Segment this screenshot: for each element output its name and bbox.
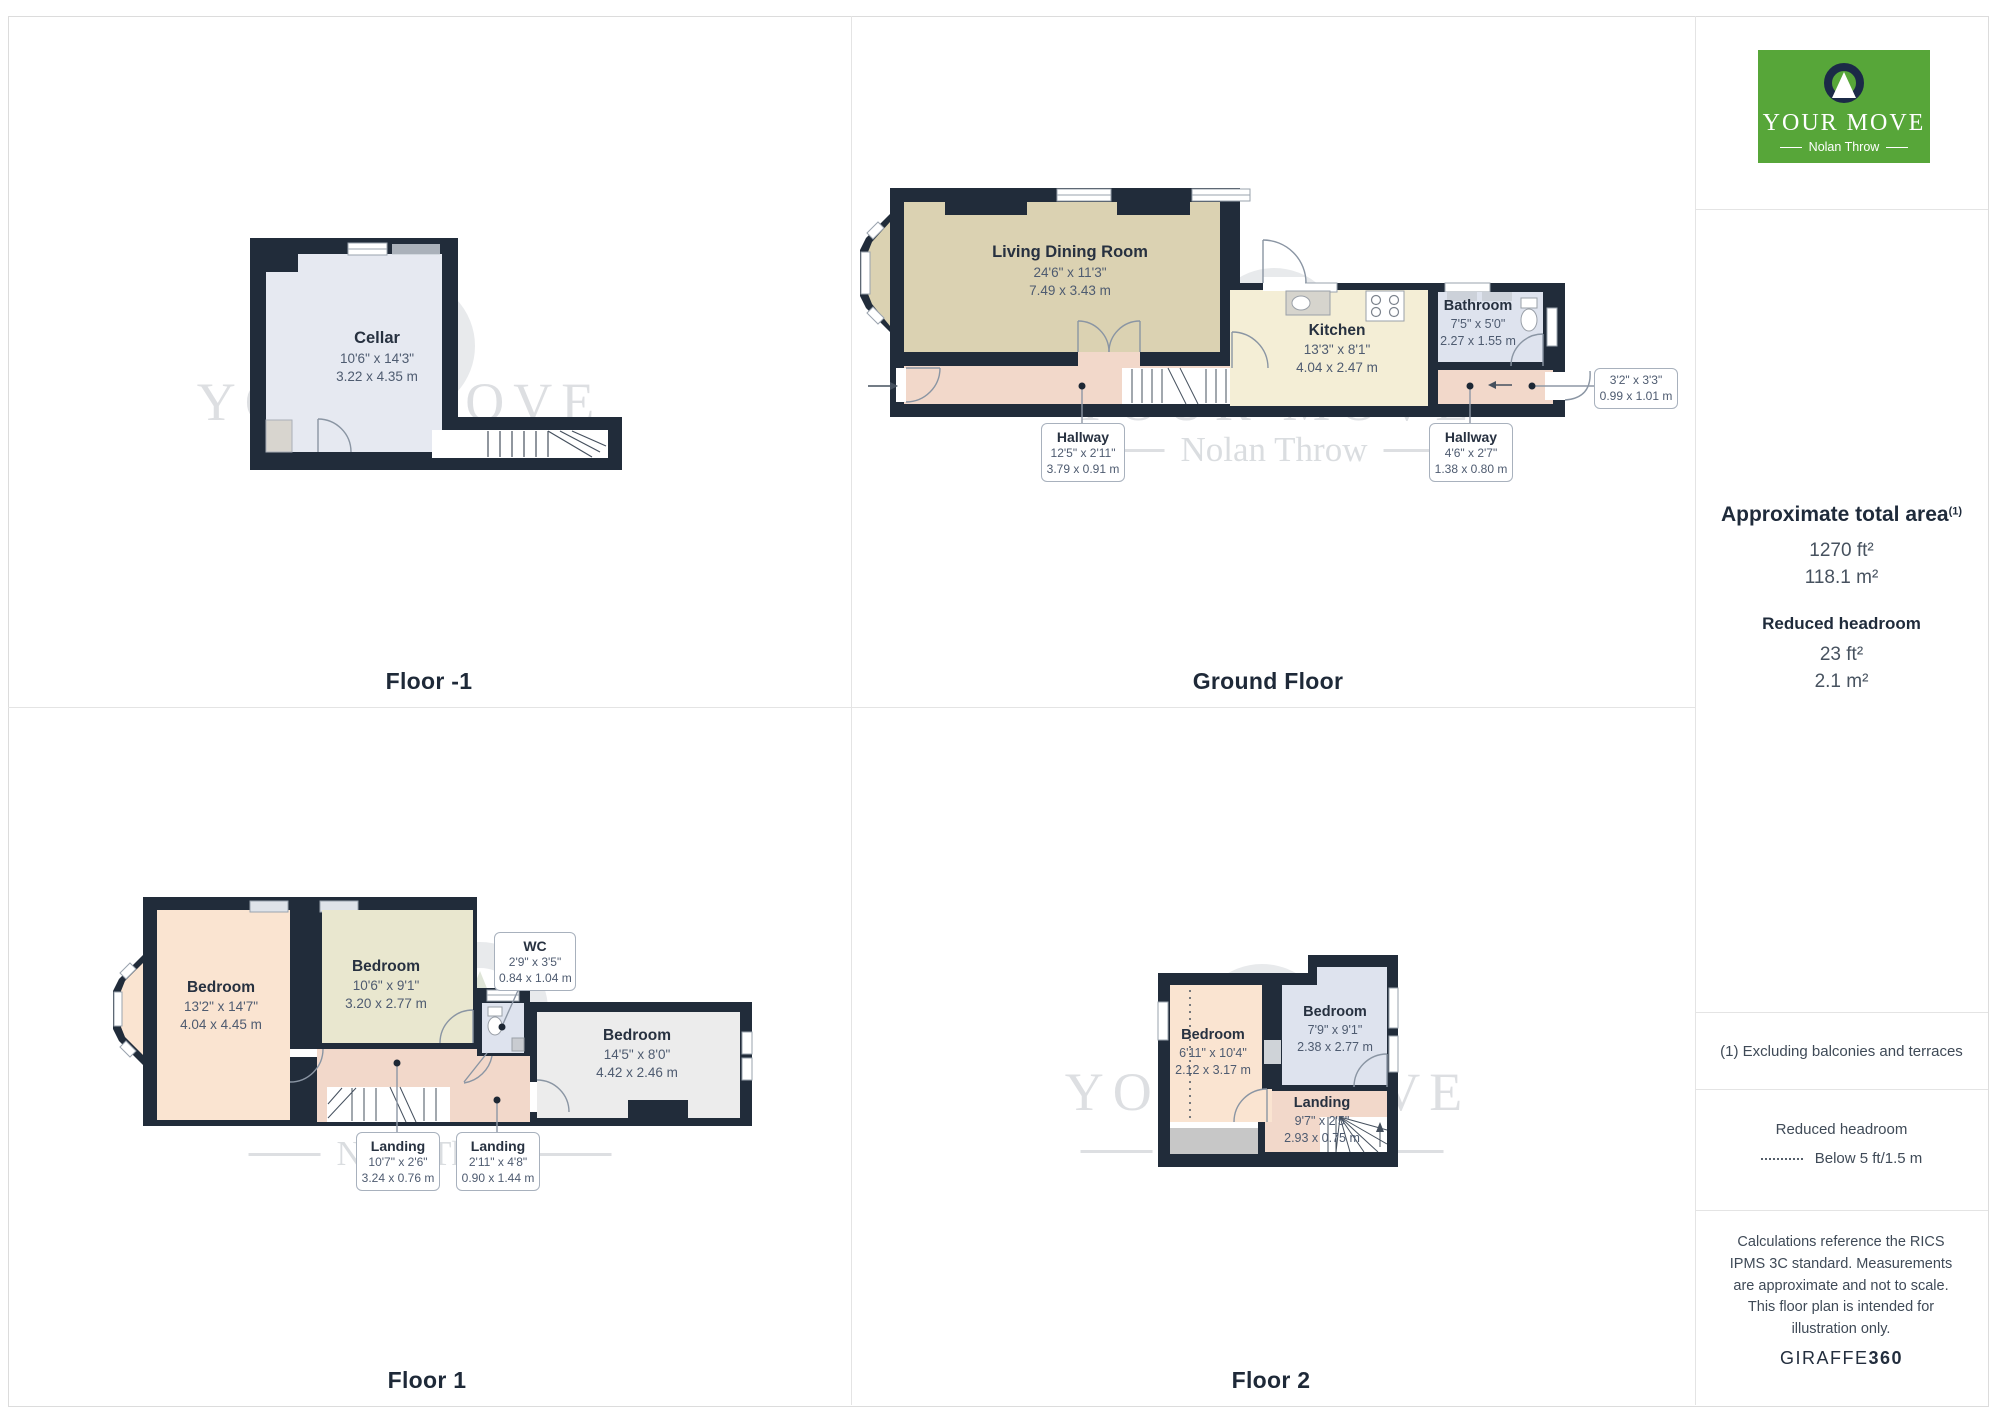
room-name: Landing	[361, 1137, 435, 1155]
room-dim-imperial: 13'2" x 14'7"	[180, 998, 262, 1016]
room-name: Bathroom	[1440, 297, 1516, 316]
floor-label-ground: Ground Floor	[1193, 668, 1344, 695]
room-dim-imperial: 6'11" x 10'4"	[1175, 1045, 1251, 1062]
room-dim-metric: 3.22 x 4.35 m	[336, 368, 418, 386]
room-dim-metric: 4.42 x 2.46 m	[596, 1064, 678, 1082]
your-move-logo: YOUR MOVE Nolan Throw	[1758, 50, 1930, 163]
callout-hallway-rear: Hallway 4'6" x 2'7" 1.38 x 0.80 m	[1429, 423, 1513, 482]
sidebar-divider-1	[1696, 209, 1988, 210]
sidebar-divider-4	[1696, 1210, 1988, 1211]
room-dim-metric: 2.27 x 1.55 m	[1440, 333, 1516, 350]
room-dim-imperial: 4'6" x 2'7"	[1434, 446, 1508, 462]
room-dim-imperial: 10'6" x 14'3"	[336, 350, 418, 368]
area-title: Approximate total area	[1721, 503, 1949, 526]
sidebar-divider-3	[1696, 1089, 1988, 1090]
room-dim-metric: 2.93 x 0.75 m	[1284, 1130, 1360, 1147]
giraffe360-num: 360	[1868, 1348, 1903, 1368]
room-label-kitchen: Kitchen 13'3" x 8'1" 4.04 x 2.47 m	[1296, 321, 1378, 377]
callout-landing1: Landing 10'7" x 2'6" 3.24 x 0.76 m	[356, 1132, 440, 1191]
floor1-plan-drawing	[95, 890, 785, 1190]
room-label-floor2-bedroom1: Bedroom 6'11" x 10'4" 2.12 x 3.17 m	[1175, 1026, 1251, 1078]
reduced-headroom-dotted-line	[1761, 1158, 1803, 1160]
room-label-cellar: Cellar 10'6" x 14'3" 3.22 x 4.35 m	[336, 328, 418, 385]
floor-label-1: Floor 1	[388, 1367, 467, 1394]
room-name: WC	[499, 937, 571, 955]
room-label-bathroom: Bathroom 7'5" x 5'0" 2.27 x 1.55 m	[1440, 297, 1516, 349]
area-footnote: (1) Excluding balconies and terraces	[1695, 1043, 1988, 1060]
room-label-bedroom2: Bedroom 10'6" x 9'1" 3.20 x 2.77 m	[345, 957, 427, 1013]
room-label-bedroom3: Bedroom 14'5" x 8'0" 4.42 x 2.46 m	[596, 1026, 678, 1082]
room-dim-metric: 2.38 x 2.77 m	[1297, 1039, 1373, 1056]
legend-value: Below 5 ft/1.5 m	[1815, 1150, 1923, 1167]
vertical-divider-sidebar	[1695, 16, 1696, 1405]
room-dim-metric: 0.99 x 1.01 m	[1599, 389, 1673, 405]
disclaimer-text: Calculations reference the RICS IPMS 3C …	[1721, 1232, 1961, 1341]
room-name: Living Dining Room	[992, 242, 1148, 264]
floor-label-2: Floor 2	[1232, 1367, 1311, 1394]
logo-dash	[1780, 147, 1802, 148]
room-dim-imperial: 7'9" x 9'1"	[1297, 1022, 1373, 1039]
headroom-m: 2.1 m²	[1695, 671, 1988, 693]
legend-row: Below 5 ft/1.5 m	[1695, 1150, 1988, 1167]
room-dim-metric: 3.79 x 0.91 m	[1046, 462, 1120, 478]
floor-label-minus1: Floor -1	[386, 668, 473, 695]
room-name: Bedroom	[180, 978, 262, 998]
room-dim-metric: 3.24 x 0.76 m	[361, 1171, 435, 1187]
room-dim-imperial: 2'9" x 3'5"	[499, 955, 571, 971]
room-dim-metric: 4.04 x 2.47 m	[1296, 359, 1378, 377]
callout-hallway-main: Hallway 12'5" x 2'11" 3.79 x 0.91 m	[1041, 423, 1125, 482]
room-dim-imperial: 9'7" x 2'5"	[1284, 1113, 1360, 1130]
logo-subtitle: Nolan Throw	[1809, 140, 1880, 154]
room-name: Landing	[1284, 1094, 1360, 1113]
callout-landing2: Landing 2'11" x 4'8" 0.90 x 1.44 m	[456, 1132, 540, 1191]
callout-store: 3'2" x 3'3" 0.99 x 1.01 m	[1594, 368, 1678, 409]
room-label-floor2-bedroom2: Bedroom 7'9" x 9'1" 2.38 x 2.77 m	[1297, 1003, 1373, 1055]
room-dim-metric: 4.04 x 4.45 m	[180, 1016, 262, 1034]
vertical-divider-left	[851, 16, 852, 1405]
room-dim-metric: 2.12 x 3.17 m	[1175, 1062, 1251, 1079]
kitchen-patio-door	[1263, 240, 1306, 283]
wc-toilet-icon	[488, 1007, 502, 1035]
room-dim-metric: 1.38 x 0.80 m	[1434, 462, 1508, 478]
room-dim-imperial: 2'11" x 4'8"	[461, 1155, 535, 1171]
area-title-footnote-mark: (1)	[1949, 506, 1962, 518]
room-dim-metric: 0.90 x 1.44 m	[461, 1171, 535, 1187]
logo-subtitle-row: Nolan Throw	[1773, 140, 1916, 154]
sidebar-divider-2	[1696, 1012, 1988, 1013]
area-ft: 1270 ft²	[1695, 540, 1988, 562]
room-label-floor2-landing: Landing 9'7" x 2'5" 2.93 x 0.75 m	[1284, 1094, 1360, 1146]
room-dim-imperial: 24'6" x 11'3"	[992, 264, 1148, 282]
room-dim-metric: 0.84 x 1.04 m	[499, 971, 571, 987]
callout-wc: WC 2'9" x 3'5" 0.84 x 1.04 m	[494, 932, 576, 991]
toilet-icon	[1521, 298, 1537, 331]
your-move-logo-icon	[1817, 58, 1871, 108]
room-dim-metric: 7.49 x 3.43 m	[992, 282, 1148, 300]
logo-title: YOUR MOVE	[1763, 110, 1926, 137]
room-name: Cellar	[336, 328, 418, 350]
room-dim-imperial: 12'5" x 2'11"	[1046, 446, 1120, 462]
room-name: Hallway	[1434, 428, 1508, 446]
cellar-plan-drawing	[230, 225, 650, 480]
horizontal-divider	[8, 707, 1695, 708]
giraffe360-logo: GIRAFFE360	[1695, 1348, 1988, 1369]
room-name: Landing	[461, 1137, 535, 1155]
room-name: Bedroom	[1175, 1026, 1251, 1045]
room-dim-imperial: 7'5" x 5'0"	[1440, 316, 1516, 333]
area-m: 118.1 m²	[1695, 567, 1988, 589]
headroom-title: Reduced headroom	[1695, 614, 1988, 634]
floorplan-page: YOUR MOVE Nolan Throw YOUR MOVE Nolan Th…	[0, 0, 2000, 1414]
room-dim-imperial: 3'2" x 3'3"	[1599, 373, 1673, 389]
room-name: Kitchen	[1296, 321, 1378, 341]
room-dim-metric: 3.20 x 2.77 m	[345, 995, 427, 1013]
room-dim-imperial: 10'7" x 2'6"	[361, 1155, 435, 1171]
logo-dash	[1886, 147, 1908, 148]
room-dim-imperial: 13'3" x 8'1"	[1296, 341, 1378, 359]
room-name: Bedroom	[1297, 1003, 1373, 1022]
giraffe360-name: GIRAFFE	[1780, 1348, 1869, 1368]
headroom-ft: 23 ft²	[1695, 644, 1988, 666]
room-label-bedroom1: Bedroom 13'2" x 14'7" 4.04 x 4.45 m	[180, 978, 262, 1034]
room-name: Hallway	[1046, 428, 1120, 446]
room-name: Bedroom	[596, 1026, 678, 1046]
room-label-living-dining: Living Dining Room 24'6" x 11'3" 7.49 x …	[992, 242, 1148, 299]
stove-icon	[1366, 291, 1404, 321]
area-title-row: Approximate total area(1)	[1695, 503, 1988, 527]
legend-title: Reduced headroom	[1695, 1121, 1988, 1138]
room-dim-imperial: 14'5" x 8'0"	[596, 1046, 678, 1064]
room-dim-imperial: 10'6" x 9'1"	[345, 977, 427, 995]
room-name: Bedroom	[345, 957, 427, 977]
